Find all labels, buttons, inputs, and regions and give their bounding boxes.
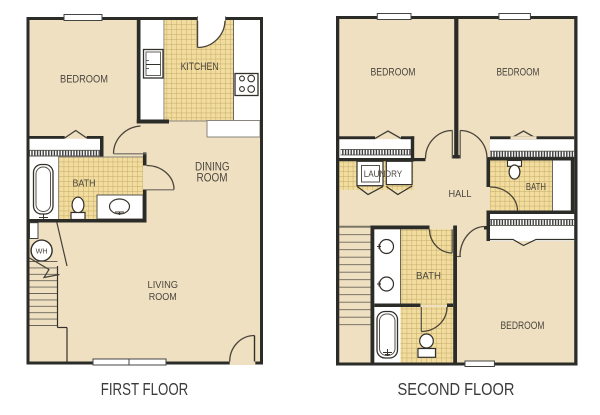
svg-text:HALL: HALL (449, 189, 472, 200)
svg-text:LIVING: LIVING (148, 280, 179, 291)
svg-text:KITCHEN: KITCHEN (181, 61, 219, 73)
svg-text:BATH: BATH (73, 179, 96, 190)
svg-text:LAUNDRY: LAUNDRY (364, 169, 402, 179)
svg-text:FIRST FLOOR: FIRST FLOOR (101, 379, 189, 399)
svg-text:BATH: BATH (526, 182, 546, 193)
svg-text:BEDROOM: BEDROOM (371, 66, 416, 78)
svg-text:ROOM: ROOM (197, 172, 228, 184)
svg-text:WH: WH (36, 246, 48, 255)
svg-text:BEDROOM: BEDROOM (60, 74, 108, 86)
svg-text:ROOM: ROOM (149, 292, 177, 303)
svg-text:BEDROOM: BEDROOM (501, 320, 545, 332)
svg-text:BEDROOM: BEDROOM (497, 66, 540, 78)
svg-text:BATH: BATH (416, 271, 441, 282)
svg-text:SECOND FLOOR: SECOND FLOOR (398, 379, 515, 399)
